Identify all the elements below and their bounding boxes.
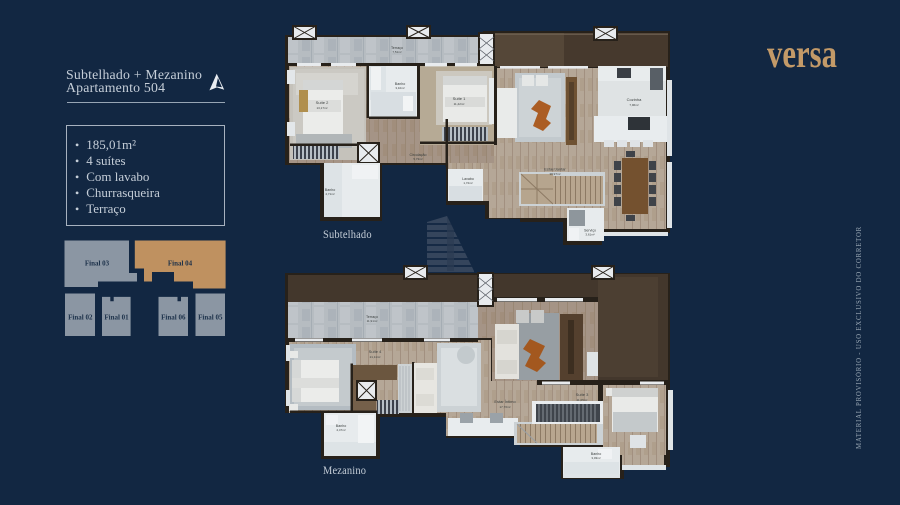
svg-text:Estar/Jantar: Estar/Jantar — [544, 167, 566, 172]
svg-text:3,10m²: 3,10m² — [395, 86, 404, 90]
svg-text:3,61m²: 3,61m² — [585, 233, 594, 237]
svg-text:4,71m²: 4,71m² — [325, 192, 334, 196]
svg-text:1,72m²: 1,72m² — [463, 181, 472, 185]
svg-text:Final 02: Final 02 — [68, 314, 93, 322]
svg-text:Final 05: Final 05 — [198, 314, 223, 322]
svg-text:Estar Íntimo: Estar Íntimo — [494, 399, 516, 404]
svg-text:Suíte 3: Suíte 3 — [576, 392, 589, 397]
svg-text:Final 06: Final 06 — [161, 314, 186, 322]
svg-text:13,17m²: 13,17m² — [316, 106, 327, 110]
svg-text:Final 04: Final 04 — [168, 260, 193, 268]
svg-text:21,11m²: 21,11m² — [370, 355, 381, 359]
svg-text:38,97m²: 38,97m² — [549, 172, 560, 176]
svg-text:11,42m²: 11,42m² — [454, 102, 465, 106]
svg-text:Cozinha: Cozinha — [627, 97, 642, 102]
svg-text:Final 01: Final 01 — [104, 314, 129, 322]
svg-text:4,47m²: 4,47m² — [336, 428, 345, 432]
svg-text:Suíte 1: Suíte 1 — [453, 96, 466, 101]
svg-text:7,51m²: 7,51m² — [392, 50, 401, 54]
svg-text:Suíte 4: Suíte 4 — [369, 349, 382, 354]
svg-text:Final 03: Final 03 — [85, 260, 110, 268]
svg-text:11,05m²: 11,05m² — [577, 398, 588, 402]
svg-text:Suíte 2: Suíte 2 — [316, 100, 329, 105]
svg-text:17,76m²: 17,76m² — [499, 405, 510, 409]
svg-text:versa: versa — [767, 42, 837, 74]
svg-text:11,91m²: 11,91m² — [367, 319, 378, 323]
svg-text:3,03m²: 3,03m² — [591, 456, 600, 460]
svg-text:7,96m²: 7,96m² — [629, 103, 638, 107]
svg-text:5,73m²: 5,73m² — [413, 157, 422, 161]
